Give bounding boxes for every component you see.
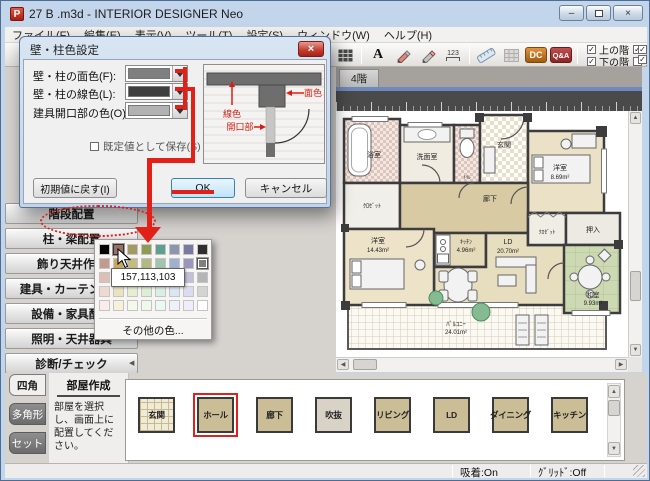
scroll-right-icon[interactable]: ▶ xyxy=(615,359,627,370)
color-swatch[interactable] xyxy=(113,300,124,311)
room-button[interactable]: ダイニング xyxy=(492,397,529,433)
annotation-line xyxy=(147,158,152,230)
color-swatch[interactable] xyxy=(127,286,138,297)
floor-tab-bar: 4階 xyxy=(336,67,642,87)
dialog-body: 壁・柱の面色(F): 壁・柱の線色(L): 建具開口部の色(O): 既定値として… xyxy=(23,59,327,204)
palette-scroll-thumb[interactable] xyxy=(608,400,620,416)
qa-button[interactable]: Q&A xyxy=(550,47,572,63)
room-area-ld: 20.70m² xyxy=(497,249,519,255)
status-divider xyxy=(604,465,605,477)
room-button[interactable]: キッチン xyxy=(551,397,588,433)
color-swatch[interactable] xyxy=(141,286,152,297)
opening-color-label: 建具開口部の色(O): xyxy=(33,105,129,121)
color-swatch[interactable] xyxy=(169,244,180,255)
wall-color-dialog: 壁・柱色設定 × 壁・柱の面色(F): 壁・柱の線色(L): 建具開口部の色(O… xyxy=(19,36,331,208)
vertical-scroll-thumb[interactable] xyxy=(630,271,641,301)
menu-item[interactable]: ヘルプ(H) xyxy=(377,27,439,43)
preview-line-label: 線色 xyxy=(223,108,241,119)
checkbox-icon xyxy=(90,142,99,151)
room-creation-instruction: 部屋を選択し、画面上に配置してください。 xyxy=(49,397,128,457)
room-label-washitsu: 和室 xyxy=(587,290,601,299)
room-label-bed2: 洋室 xyxy=(371,236,385,245)
shape-tab[interactable]: 多角形 xyxy=(9,403,46,425)
color-swatch[interactable] xyxy=(99,286,110,297)
line-color-dropdown[interactable] xyxy=(125,83,188,100)
minimize-button[interactable]: – xyxy=(559,5,584,21)
maximize-button[interactable] xyxy=(586,5,611,21)
room-label-bed1: 洋室 xyxy=(553,163,567,172)
room-button[interactable]: 玄関 xyxy=(138,397,175,433)
opening-color-swatch xyxy=(128,105,170,116)
scroll-down-icon[interactable]: ▼ xyxy=(608,442,620,455)
status-divider xyxy=(530,465,531,477)
line-color-label: 壁・柱の線色(L): xyxy=(33,86,116,102)
annotation-line xyxy=(147,158,195,163)
dc-button[interactable]: DC xyxy=(525,47,547,63)
room-buttons: 玄関ホール廊下吹抜リビングLDダイニングキッチン xyxy=(138,397,588,433)
window-title: 27 B .m3d - INTERIOR DESIGNER Neo xyxy=(29,7,243,21)
status-bar: 吸着:On ｸﾞﾘｯﾄﾞ:Off xyxy=(5,463,647,478)
bottom-panel: 四角多角形セット 部屋作成 部屋を選択し、画面上に配置してください。 玄関ホール… xyxy=(5,373,647,463)
scroll-left-icon[interactable]: ◀ xyxy=(337,359,349,370)
horizontal-scrollbar[interactable]: ◀ ▶ xyxy=(336,357,628,372)
color-picker-popup: その他の色... xyxy=(94,239,212,340)
room-palette: 玄関ホール廊下吹抜リビングLDダイニングキッチン ▲ ▼ xyxy=(125,379,625,461)
other-colors-button[interactable]: その他の色... xyxy=(95,322,211,339)
shape-tab[interactable]: 四角 xyxy=(9,374,46,396)
toolbar-separator xyxy=(577,46,578,64)
annotation-line xyxy=(183,67,187,110)
vertical-scrollbar[interactable]: ▲ ▼ xyxy=(628,111,642,357)
color-swatch[interactable] xyxy=(197,272,208,283)
room-label-entrance: 玄関 xyxy=(497,140,511,149)
face-color-label: 壁・柱の面色(F): xyxy=(33,68,116,84)
layer-checkbox[interactable]: ✓下の階 xyxy=(587,56,629,67)
room-creation-panel: 部屋作成 部屋を選択し、画面上に配置してください。 xyxy=(49,373,129,463)
checkbox-icon: ✓ xyxy=(587,45,596,54)
save-default-label: 既定値として保存(S) xyxy=(103,139,201,154)
color-swatch[interactable] xyxy=(99,258,110,269)
room-label-balcony: ﾊﾞﾙｺﾆｰ xyxy=(446,320,466,328)
close-icon: × xyxy=(625,8,631,19)
room-area-kitchen: 4.96m² xyxy=(457,248,476,254)
layer-toggle-column: ✓上の階✓下の階 xyxy=(587,44,629,67)
line-color-swatch xyxy=(128,86,170,97)
grid-status: ｸﾞﾘｯﾄﾞ:Off xyxy=(538,465,586,480)
annotation-ok-underline xyxy=(172,190,214,194)
room-label-bath: 浴室 xyxy=(367,150,381,159)
table-disabled-icon[interactable] xyxy=(500,45,522,65)
room-label-kitchen: ｷｯﾁﾝ xyxy=(460,239,472,246)
room-label-closet-right: ｸﾛｾﾞｯﾄ xyxy=(539,229,556,236)
collapse-arrow-icon[interactable]: ◀ xyxy=(129,359,134,367)
canvas-area: 4階 xyxy=(336,67,642,373)
pencil-gray-icon[interactable] xyxy=(417,45,439,65)
resize-grip[interactable] xyxy=(633,465,645,477)
layer-checkbox-label: 下の階 xyxy=(599,54,629,68)
color-swatch[interactable] xyxy=(99,272,110,283)
grid-table-icon[interactable] xyxy=(334,45,356,65)
palette-scrollbar[interactable]: ▲ ▼ xyxy=(607,383,621,457)
color-swatch[interactable] xyxy=(183,300,194,311)
color-swatch[interactable] xyxy=(155,300,166,311)
color-preview-diagram: 線色 面色 開口部 xyxy=(203,64,325,164)
toolbar-separator xyxy=(469,46,470,64)
color-swatch[interactable] xyxy=(141,244,152,255)
clipped-layer-checkboxes[interactable]: ✓ ✓ xyxy=(638,45,647,64)
checkbox-icon: ✓ xyxy=(638,45,647,54)
color-swatch[interactable] xyxy=(155,286,166,297)
app-icon: P xyxy=(10,7,24,21)
room-button[interactable]: LD xyxy=(433,397,470,433)
minimize-icon: – xyxy=(569,8,575,19)
color-swatch[interactable] xyxy=(183,244,194,255)
face-color-swatch xyxy=(128,68,170,79)
ok-button[interactable]: OK xyxy=(171,178,235,198)
dialog-title: 壁・柱色設定 xyxy=(30,42,99,58)
reset-defaults-button[interactable]: 初期値に戻す(I) xyxy=(33,178,117,198)
color-swatch[interactable] xyxy=(197,244,208,255)
shape-tabs: 四角多角形セット xyxy=(9,374,46,454)
cancel-button[interactable]: キャンセル xyxy=(245,178,327,198)
scroll-up-icon[interactable]: ▲ xyxy=(608,385,620,398)
room-label-oshiire: 押入 xyxy=(586,225,600,234)
ruler-icon[interactable] xyxy=(475,45,497,65)
close-button[interactable]: × xyxy=(613,5,643,21)
color-swatch[interactable] xyxy=(155,244,166,255)
floor-plan[interactable]: 浴室 洗面室 ﾄｲﾚ 玄関 廊下 ｸﾛｾﾞｯﾄ 洋室 8.69m² ｸﾛｾﾞｯﾄ… xyxy=(338,113,628,357)
room-button[interactable]: リビング xyxy=(374,397,411,433)
dimension-tool-icon[interactable]: 123 xyxy=(442,45,464,65)
room-label-wash: 洗面室 xyxy=(417,152,438,161)
face-color-dropdown[interactable] xyxy=(125,65,188,82)
pencil-red-icon[interactable] xyxy=(392,45,414,65)
room-button[interactable]: ホール xyxy=(197,397,234,433)
dialog-close-button[interactable]: × xyxy=(298,41,324,57)
color-swatch[interactable] xyxy=(169,286,180,297)
color-swatch[interactable] xyxy=(99,300,110,311)
room-label-closet-left: ｸﾛｾﾞｯﾄ xyxy=(363,203,381,210)
floor-tab[interactable]: 4階 xyxy=(339,69,379,87)
annotation-line xyxy=(191,87,195,163)
toolbar-separator xyxy=(361,46,362,64)
color-swatch[interactable] xyxy=(183,286,194,297)
color-swatch[interactable] xyxy=(169,300,180,311)
sidebar-item[interactable]: 診断/チェック xyxy=(5,353,138,373)
room-area-washitsu: 9.93m² xyxy=(584,301,603,307)
horizontal-ruler xyxy=(336,91,642,111)
room-label-ld: LD xyxy=(504,239,513,246)
room-area-bed2: 14.43m² xyxy=(367,248,389,254)
status-divider xyxy=(452,465,453,477)
mouse-cursor-icon xyxy=(117,248,131,274)
maximize-icon xyxy=(595,10,603,17)
save-default-checkbox[interactable]: 既定値として保存(S) xyxy=(90,139,201,154)
app-window: P 27 B .m3d - INTERIOR DESIGNER Neo – × … xyxy=(0,0,650,481)
close-icon: × xyxy=(308,43,314,55)
color-swatch[interactable] xyxy=(197,300,208,311)
room-creation-title: 部屋作成 xyxy=(57,377,120,397)
color-swatch[interactable] xyxy=(197,286,208,297)
popup-separator xyxy=(99,318,207,320)
color-swatch[interactable] xyxy=(99,244,110,255)
snap-status: 吸着:On xyxy=(460,465,498,480)
room-button[interactable]: 廊下 xyxy=(256,397,293,433)
color-swatch[interactable] xyxy=(141,300,152,311)
scrollbar-corner xyxy=(628,357,642,372)
horizontal-scroll-thumb[interactable] xyxy=(353,359,377,370)
room-label-toilet: ﾄｲﾚ xyxy=(463,175,471,181)
color-swatch[interactable] xyxy=(127,300,138,311)
room-button[interactable]: 吹抜 xyxy=(315,397,352,433)
preview-opening-label: 開口部 xyxy=(226,121,253,132)
title-bar[interactable]: P 27 B .m3d - INTERIOR DESIGNER Neo – × xyxy=(1,1,649,27)
room-area-balcony: 24.01m² xyxy=(445,330,467,336)
color-swatch[interactable] xyxy=(113,286,124,297)
room-label-corridor: 廊下 xyxy=(483,194,497,203)
shape-tab[interactable]: セット xyxy=(9,432,46,454)
checkbox-icon: ✓ xyxy=(587,57,596,66)
preview-face-label: 面色 xyxy=(304,87,322,98)
scroll-up-icon[interactable]: ▲ xyxy=(630,112,641,124)
text-tool-icon[interactable]: A xyxy=(367,45,389,65)
color-swatch[interactable] xyxy=(197,258,208,269)
room-area-bed1: 8.69m² xyxy=(551,175,570,181)
checkbox-icon: ✓ xyxy=(638,55,647,64)
annotation-arrow-icon xyxy=(135,227,161,243)
drawing-sheet[interactable]: 浴室 洗面室 ﾄｲﾚ 玄関 廊下 ｸﾛｾﾞｯﾄ 洋室 8.69m² ｸﾛｾﾞｯﾄ… xyxy=(336,111,628,357)
scroll-down-icon[interactable]: ▼ xyxy=(630,344,641,356)
